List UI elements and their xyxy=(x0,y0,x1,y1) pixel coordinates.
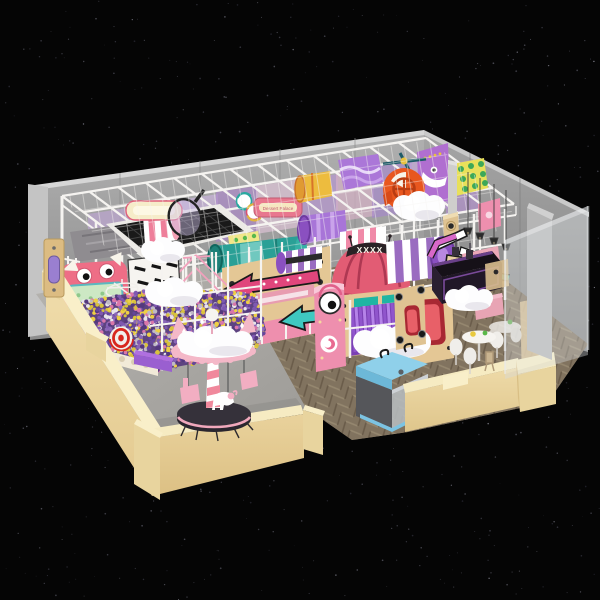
svg-text:XXXX: XXXX xyxy=(357,245,384,255)
